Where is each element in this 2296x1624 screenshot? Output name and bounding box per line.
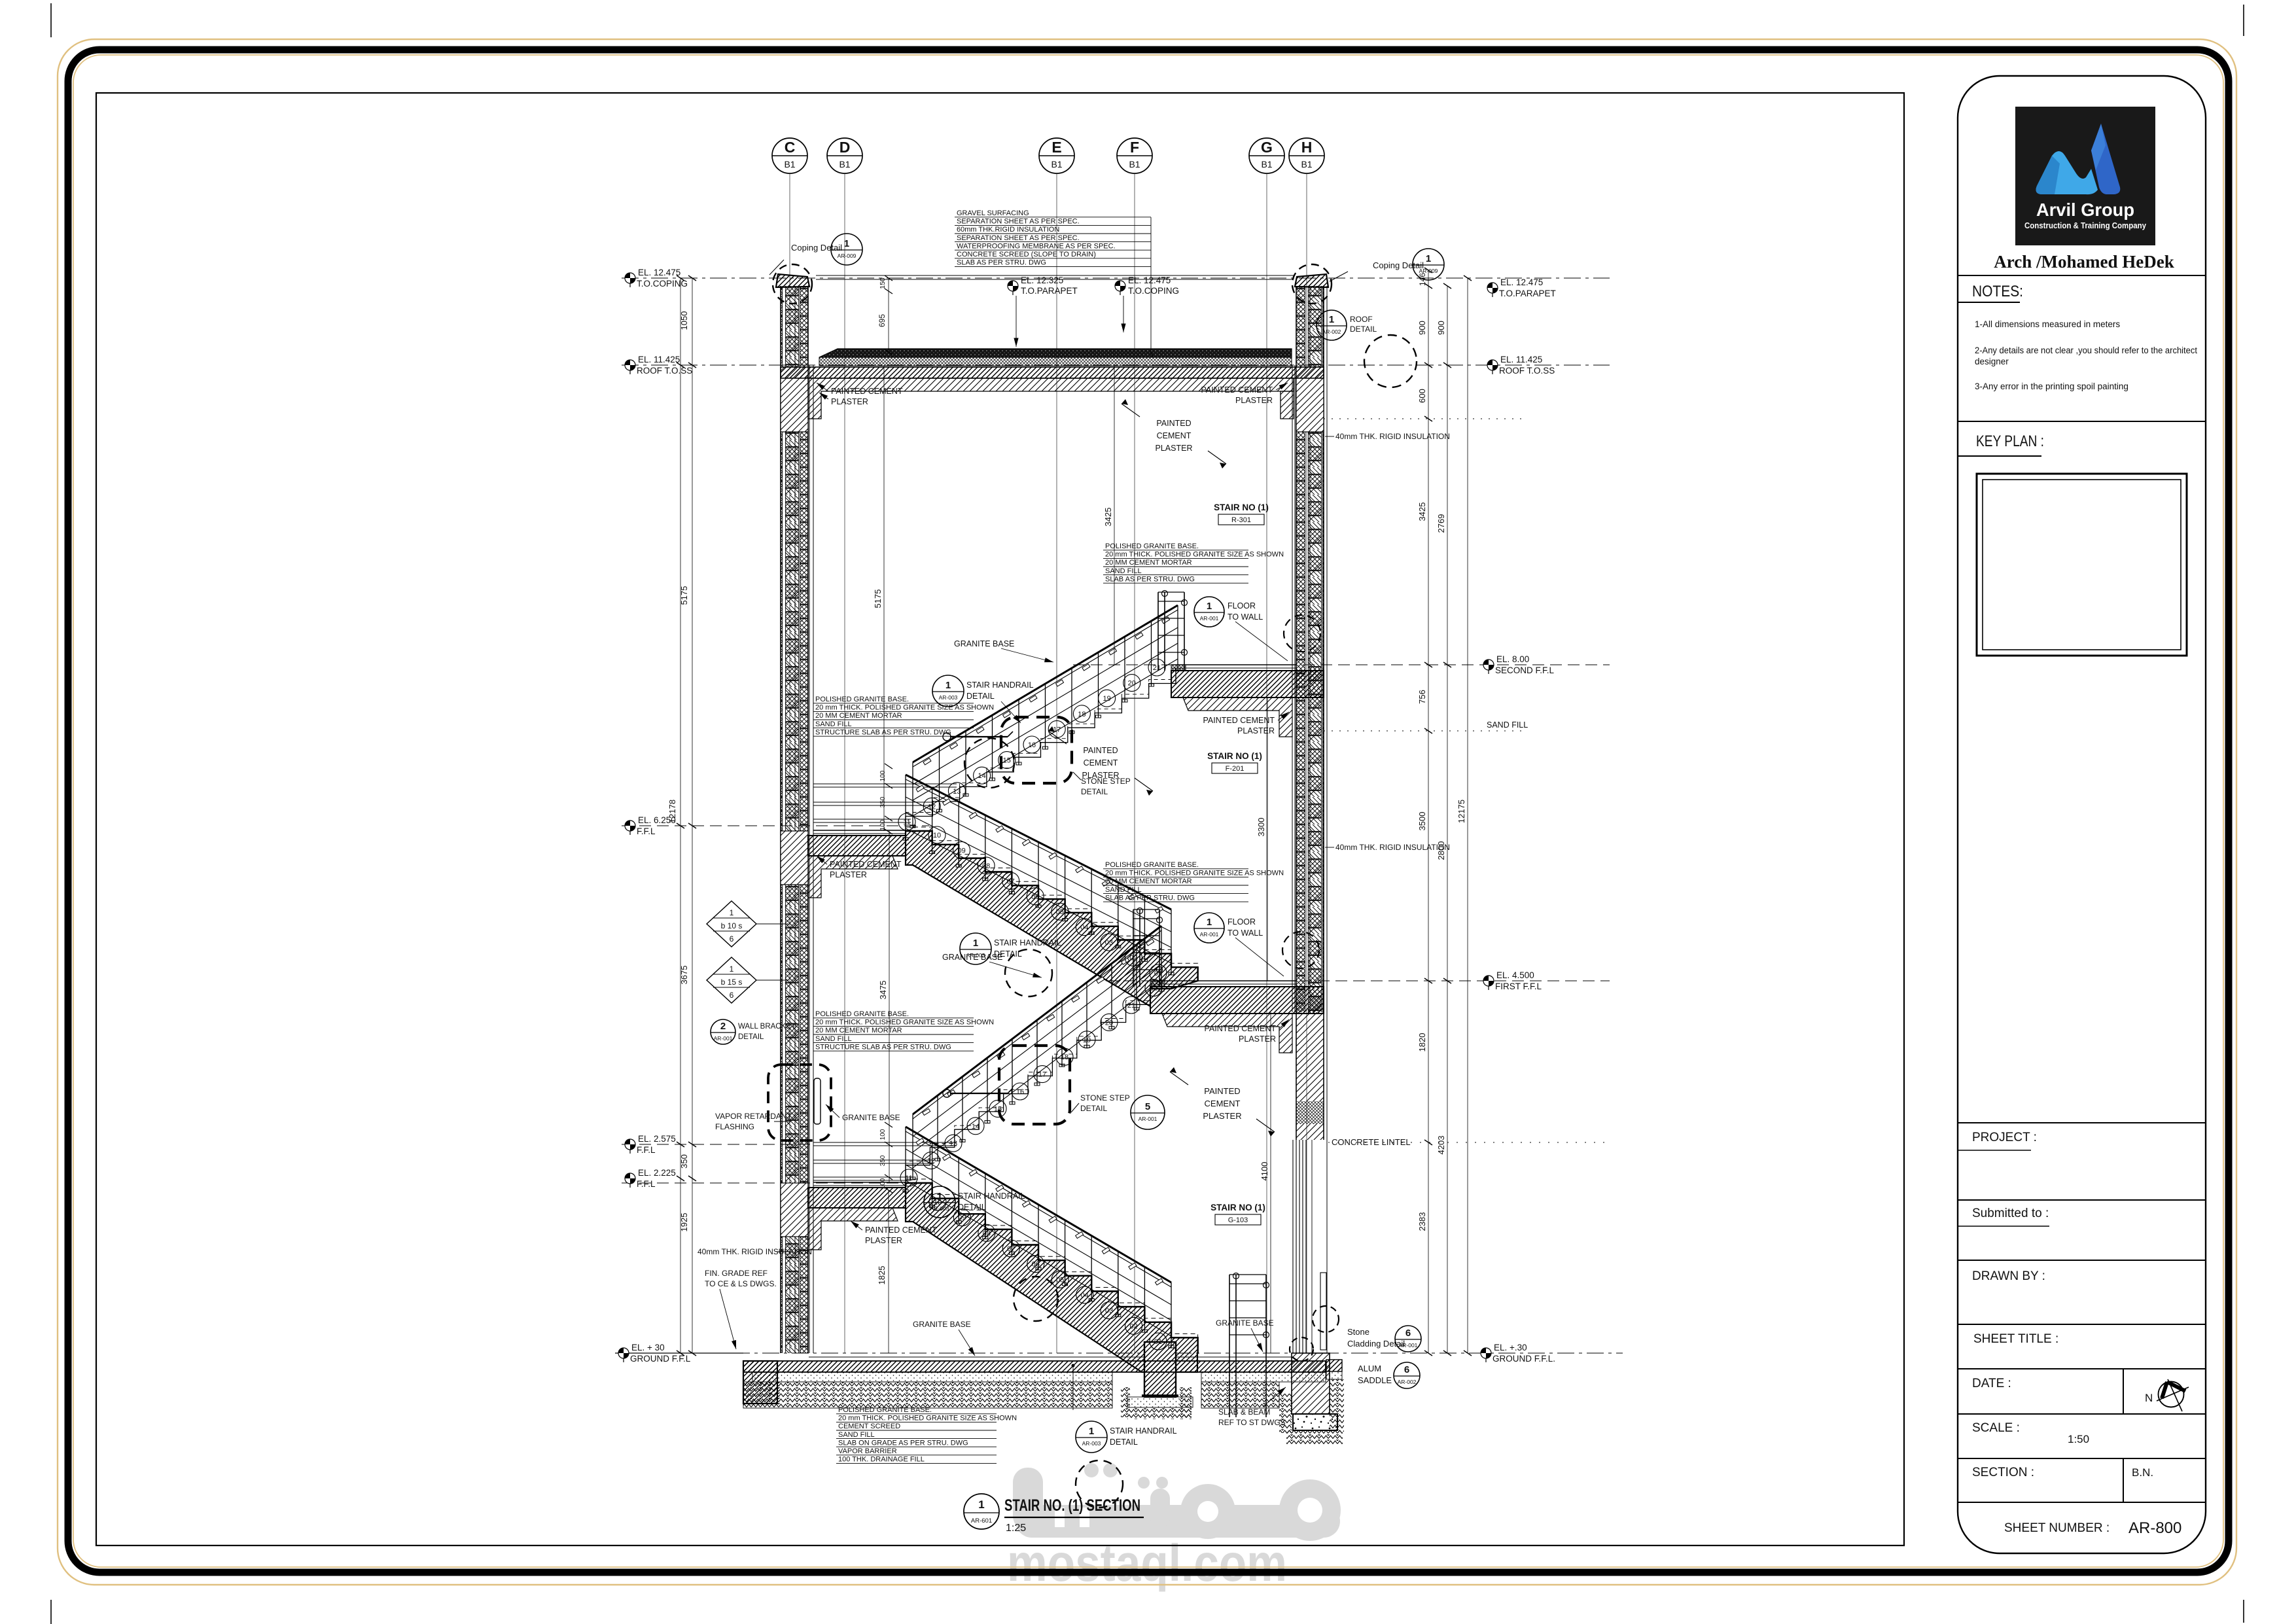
svg-text:FIN. GRADE REF: FIN. GRADE REF: [705, 1269, 768, 1278]
svg-text:EL. 8.00: EL. 8.00: [1496, 654, 1529, 664]
svg-text:1: 1: [973, 938, 978, 949]
svg-text:3-Any error in the printing sp: 3-Any error in the printing spoil painti…: [1975, 381, 2128, 391]
svg-text:2800: 2800: [1436, 841, 1446, 860]
svg-text:SLAB AS PER STRU. DWG: SLAB AS PER STRU. DWG: [957, 259, 1046, 267]
svg-text:DATE :: DATE :: [1972, 1377, 2011, 1390]
svg-text:17: 17: [1053, 726, 1061, 733]
svg-text:b 15 s: b 15 s: [721, 978, 743, 987]
svg-text:G-103: G-103: [1228, 1216, 1248, 1224]
svg-text:FLASHING: FLASHING: [715, 1122, 754, 1131]
svg-text:3300: 3300: [1256, 818, 1266, 837]
svg-text:DETAIL: DETAIL: [958, 1203, 986, 1212]
svg-text:AR-601: AR-601: [971, 1517, 992, 1525]
svg-text:SLAB AS PER STRU. DWG: SLAB AS PER STRU. DWG: [1105, 575, 1195, 583]
svg-text:EL. 12.325: EL. 12.325: [1021, 275, 1063, 285]
svg-text:Arvil Group: Arvil Group: [2036, 200, 2134, 220]
svg-text:1: 1: [1207, 917, 1212, 928]
svg-text:SAND FILL: SAND FILL: [838, 1431, 875, 1439]
svg-text:T.O.COPING: T.O.COPING: [1128, 286, 1179, 296]
svg-text:20 mm THICK. POLISHED GRANITE: 20 mm THICK. POLISHED GRANITE SIZE AS SH…: [838, 1415, 1017, 1422]
svg-text:B1: B1: [1261, 159, 1272, 169]
svg-text:WALL BRACKET: WALL BRACKET: [738, 1023, 796, 1031]
svg-text:SAND FILL: SAND FILL: [1487, 720, 1528, 730]
svg-text:EL. +.30: EL. +.30: [1494, 1343, 1527, 1352]
svg-text:F.F.L: F.F.L: [637, 826, 656, 836]
svg-text:11: 11: [905, 1174, 912, 1182]
svg-text:EL. 12.475: EL. 12.475: [638, 268, 680, 277]
svg-text:1:25: 1:25: [1006, 1523, 1026, 1534]
svg-text:TO WALL: TO WALL: [1227, 928, 1263, 938]
svg-text:SAND FILL: SAND FILL: [815, 720, 852, 728]
svg-text:6: 6: [1405, 1328, 1411, 1339]
svg-text:1: 1: [844, 238, 849, 249]
svg-text:GRANITE BASE: GRANITE BASE: [842, 1113, 900, 1122]
svg-text:DETAIL: DETAIL: [1081, 787, 1108, 796]
svg-text:02: 02: [1129, 955, 1137, 962]
svg-text:PLASTER: PLASTER: [865, 1236, 902, 1245]
svg-text:05: 05: [1056, 1276, 1064, 1284]
svg-text:SECOND F.F.L: SECOND F.F.L: [1495, 665, 1555, 675]
svg-text:1925: 1925: [679, 1213, 689, 1232]
svg-text:B1: B1: [1129, 159, 1140, 169]
svg-text:AR-003: AR-003: [966, 952, 985, 959]
svg-text:DETAIL: DETAIL: [738, 1033, 764, 1041]
svg-text:N: N: [2145, 1392, 2153, 1404]
svg-text:21: 21: [1127, 1002, 1135, 1010]
svg-text:ALUM: ALUM: [1358, 1364, 1381, 1373]
svg-text:G: G: [1261, 139, 1273, 156]
svg-text:CONCRETE SCREED (SLOPE TO DRAI: CONCRETE SCREED (SLOPE TO DRAIN): [957, 251, 1096, 258]
svg-text:11: 11: [903, 819, 910, 826]
svg-text:AR-003: AR-003: [939, 694, 958, 701]
svg-text:F.F.L: F.F.L: [637, 1179, 656, 1189]
svg-text:POLISHED GRANITE BASE.: POLISHED GRANITE BASE.: [1105, 542, 1199, 550]
svg-text:AR-001: AR-001: [1200, 931, 1219, 938]
svg-text:3425: 3425: [1103, 508, 1113, 527]
svg-text:SEPARATION SHEET AS PER SPEC.: SEPARATION SHEET AS PER SPEC.: [957, 234, 1080, 242]
svg-text:40mm THK. RIGID INSULATION: 40mm THK. RIGID INSULATION: [1335, 432, 1450, 441]
svg-text:20 mm THICK. POLISHED GRANITE: 20 mm THICK. POLISHED GRANITE SIZE AS SH…: [1105, 551, 1284, 559]
svg-text:T.O.PARAPET: T.O.PARAPET: [1499, 289, 1556, 298]
svg-text:350: 350: [879, 1155, 887, 1166]
svg-text:1:50: 1:50: [2068, 1433, 2089, 1445]
svg-text:STAIR NO (1): STAIR NO (1): [1210, 1203, 1265, 1212]
svg-text:2-Any details are not clear ,y: 2-Any details are not clear ,you should …: [1975, 345, 2197, 355]
svg-text:20: 20: [1105, 1019, 1113, 1027]
svg-text:07: 07: [1007, 1245, 1015, 1253]
svg-text:1-All dimensions measured in m: 1-All dimensions measured in meters: [1975, 319, 2120, 329]
svg-text:1: 1: [937, 1191, 942, 1202]
svg-text:4203: 4203: [1436, 1136, 1446, 1155]
svg-text:40mm THK. RIGID INSULATION: 40mm THK. RIGID INSULATION: [1335, 843, 1450, 852]
svg-text:DETAIL: DETAIL: [1350, 325, 1377, 334]
svg-text:SEPARATION SHEET AS PER SPEC.: SEPARATION SHEET AS PER SPEC.: [957, 218, 1080, 226]
svg-text:19: 19: [1083, 1036, 1091, 1044]
svg-text:60mm THK.RIGID INSULATION: 60mm THK.RIGID INSULATION: [957, 226, 1059, 234]
svg-text:VAPOR RETARDANT: VAPOR RETARDANT: [715, 1112, 792, 1121]
svg-text:B.N.: B.N.: [2132, 1466, 2153, 1479]
svg-text:GRANITE BASE: GRANITE BASE: [954, 639, 1014, 648]
svg-text:PAINTED CEMENT: PAINTED CEMENT: [1205, 1024, 1277, 1033]
svg-text:AR-003: AR-003: [930, 1205, 949, 1212]
svg-text:12178: 12178: [667, 800, 677, 823]
svg-text:PAINTED: PAINTED: [1204, 1086, 1240, 1096]
svg-text:PLASTER: PLASTER: [831, 397, 868, 406]
svg-text:EL. 11.425: EL. 11.425: [1500, 355, 1542, 364]
svg-text:4100: 4100: [1260, 1162, 1269, 1181]
svg-text:AR-002: AR-002: [1398, 1379, 1417, 1385]
svg-text:15: 15: [1003, 757, 1011, 765]
svg-text:AR-002: AR-002: [1322, 328, 1341, 335]
svg-text:AR-001: AR-001: [1139, 1116, 1157, 1122]
svg-text:150: 150: [879, 277, 887, 289]
svg-text:CEMENT: CEMENT: [1157, 431, 1192, 440]
svg-text:CEMENT: CEMENT: [1205, 1099, 1241, 1108]
svg-text:14: 14: [972, 1123, 980, 1131]
svg-text:01: 01: [1154, 1338, 1162, 1346]
svg-text:R-301: R-301: [1231, 516, 1251, 524]
svg-text:C: C: [785, 139, 796, 156]
svg-text:08: 08: [982, 862, 990, 870]
svg-text:PAINTED CEMENT: PAINTED CEMENT: [1201, 385, 1273, 395]
svg-text:Construction & Training Compan: Construction & Training Company: [2024, 221, 2146, 230]
svg-text:B1: B1: [1301, 159, 1312, 169]
svg-text:H: H: [1301, 139, 1313, 156]
svg-text:STAIR HANDRAIL: STAIR HANDRAIL: [994, 938, 1061, 947]
svg-text:5: 5: [1145, 1101, 1150, 1112]
svg-text:PAINTED CEMENT: PAINTED CEMENT: [1203, 716, 1275, 725]
svg-text:756: 756: [1417, 690, 1427, 704]
svg-text:KEY PLAN :: KEY PLAN :: [1976, 432, 2044, 450]
svg-text:20: 20: [1128, 680, 1136, 688]
svg-text:100 THK. DRAINAGE FILL: 100 THK. DRAINAGE FILL: [838, 1456, 925, 1464]
svg-text:SCALE :: SCALE :: [1972, 1421, 2020, 1435]
svg-text:ROOF T.O.SS: ROOF T.O.SS: [1499, 366, 1555, 376]
svg-text:6: 6: [730, 934, 734, 944]
svg-text:05: 05: [1056, 908, 1064, 916]
svg-text:EL. 2.225: EL. 2.225: [638, 1168, 676, 1178]
svg-text:1: 1: [1089, 1426, 1094, 1437]
svg-text:AR-001: AR-001: [1399, 1342, 1418, 1349]
svg-text:17: 17: [1038, 1071, 1046, 1079]
svg-text:PAINTED CEMENT: PAINTED CEMENT: [830, 860, 902, 869]
svg-text:06: 06: [1032, 1261, 1040, 1269]
svg-text:Stone: Stone: [1347, 1327, 1369, 1337]
svg-text:SLAB ON GRADE AS PER STRU. DWG: SLAB ON GRADE AS PER STRU. DWG: [838, 1439, 968, 1447]
svg-text:100: 100: [879, 1129, 887, 1140]
svg-text:04: 04: [1081, 1292, 1089, 1299]
svg-text:06: 06: [1031, 893, 1039, 901]
svg-text:STAIR NO (1): STAIR NO (1): [1207, 751, 1262, 761]
svg-text:10: 10: [933, 832, 941, 839]
svg-text:100: 100: [879, 770, 887, 781]
svg-text:SAND FILL: SAND FILL: [1105, 886, 1142, 894]
svg-text:900: 900: [1436, 321, 1446, 335]
svg-text:09: 09: [958, 1214, 966, 1222]
svg-text:STRUCTURE SLAB AS PER STRU. DW: STRUCTURE SLAB AS PER STRU. DWG: [815, 728, 951, 736]
svg-text:01: 01: [1154, 970, 1162, 978]
svg-text:SLAB & BEAM: SLAB & BEAM: [1218, 1407, 1270, 1417]
svg-text:3475: 3475: [878, 981, 888, 1000]
svg-text:PAINTED: PAINTED: [1083, 746, 1118, 755]
svg-text:FIRST F.F.L: FIRST F.F.L: [1495, 981, 1542, 991]
svg-text:08: 08: [983, 1229, 991, 1237]
svg-text:1: 1: [945, 680, 951, 691]
svg-text:PAINTED CEMENT: PAINTED CEMENT: [865, 1226, 937, 1235]
svg-text:SLAB AS PER STRU. DWG: SLAB AS PER STRU. DWG: [1105, 894, 1195, 902]
svg-text:22: 22: [1150, 985, 1157, 993]
svg-text:GRAVEL SURFACING: GRAVEL SURFACING: [957, 209, 1029, 217]
svg-text:2769: 2769: [1436, 514, 1446, 533]
svg-text:REF TO ST DWGS: REF TO ST DWGS: [1218, 1418, 1286, 1427]
svg-text:20 mm THICK. POLISHED GRANITE: 20 mm THICK. POLISHED GRANITE SIZE AS SH…: [1105, 870, 1284, 877]
svg-text:PLASTER: PLASTER: [1235, 396, 1273, 405]
svg-text:DETAIL: DETAIL: [966, 692, 995, 701]
svg-text:SAND FILL: SAND FILL: [1105, 567, 1142, 575]
svg-text:100: 100: [879, 1178, 887, 1189]
svg-text:GRANITE BASE: GRANITE BASE: [913, 1320, 971, 1329]
svg-text:E: E: [1051, 139, 1061, 156]
svg-text:GRANITE BASE: GRANITE BASE: [1216, 1318, 1274, 1328]
svg-text:EL. 11.425: EL. 11.425: [638, 355, 680, 364]
svg-text:13: 13: [953, 788, 961, 796]
svg-text:1825: 1825: [877, 1266, 887, 1285]
svg-text:AR-001: AR-001: [1200, 615, 1219, 622]
svg-text:DETAIL: DETAIL: [1080, 1104, 1107, 1113]
svg-text:16: 16: [1028, 741, 1036, 749]
svg-text:20 MM CEMENT MORTAR: 20 MM CEMENT MORTAR: [815, 712, 902, 720]
svg-text:FLOOR: FLOOR: [1227, 601, 1256, 610]
svg-text:03: 03: [1105, 1307, 1113, 1315]
svg-text:STAIR HANDRAIL: STAIR HANDRAIL: [958, 1192, 1025, 1201]
svg-text:CEMENT SCREED: CEMENT SCREED: [838, 1422, 900, 1430]
svg-text:40mm THK. RIGID INSULATION: 40mm THK. RIGID INSULATION: [698, 1247, 812, 1256]
svg-text:03: 03: [1105, 939, 1113, 947]
svg-text:SAND FILL: SAND FILL: [815, 1035, 852, 1043]
svg-text:DRAWN BY :: DRAWN BY :: [1972, 1269, 2045, 1283]
svg-text:SECTION :: SECTION :: [1972, 1466, 2034, 1479]
svg-text:SHEET TITLE :: SHEET TITLE :: [1973, 1332, 2058, 1346]
svg-text:SHEET NUMBER :: SHEET NUMBER :: [2004, 1521, 2110, 1535]
svg-text:100: 100: [879, 819, 887, 830]
svg-text:T.O.PARAPET: T.O.PARAPET: [1021, 286, 1078, 296]
svg-text:350: 350: [679, 1154, 689, 1169]
svg-text:POLISHED GRANITE BASE.: POLISHED GRANITE BASE.: [815, 696, 909, 703]
svg-text:695: 695: [877, 314, 887, 327]
svg-text:6: 6: [1404, 1364, 1409, 1375]
svg-text:12175: 12175: [1457, 800, 1466, 823]
svg-text:Arch /Mohamed HeDek: Arch /Mohamed HeDek: [1994, 252, 2174, 272]
svg-text:1: 1: [1207, 601, 1212, 612]
svg-text:5175: 5175: [679, 586, 689, 605]
svg-text:F.F.L: F.F.L: [637, 1145, 656, 1155]
svg-text:PLASTER: PLASTER: [1237, 726, 1275, 735]
svg-text:2383: 2383: [1417, 1212, 1427, 1231]
svg-text:18: 18: [1078, 711, 1086, 718]
svg-text:D: D: [839, 139, 851, 156]
svg-text:16: 16: [1016, 1088, 1024, 1096]
svg-text:STONE STEP: STONE STEP: [1081, 777, 1131, 786]
svg-text:19: 19: [1103, 695, 1110, 703]
svg-text:FLOOR: FLOOR: [1227, 917, 1256, 927]
svg-text:3675: 3675: [679, 966, 689, 985]
svg-text:146: 146: [1418, 273, 1427, 286]
svg-text:900: 900: [1417, 321, 1427, 335]
svg-text:1: 1: [1329, 314, 1334, 325]
svg-text:TO CE & LS DWGS.: TO CE & LS DWGS.: [705, 1279, 777, 1288]
svg-text:AR-003: AR-003: [1082, 1440, 1101, 1447]
svg-text:AR-001: AR-001: [714, 1035, 733, 1042]
svg-text:STAIR NO. (1) SECTION: STAIR NO. (1) SECTION: [1004, 1496, 1140, 1515]
svg-text:GROUND F.F.L: GROUND F.F.L: [630, 1354, 691, 1364]
svg-text:600: 600: [1417, 389, 1427, 403]
svg-text:12: 12: [927, 1157, 935, 1165]
svg-text:02: 02: [1129, 1322, 1137, 1330]
svg-text:13: 13: [949, 1140, 957, 1148]
svg-text:EL. 4.500: EL. 4.500: [1496, 970, 1534, 980]
svg-text:20 MM CEMENT MORTAR: 20 MM CEMENT MORTAR: [1105, 559, 1192, 567]
svg-text:EL. + 30: EL. + 30: [631, 1343, 665, 1352]
svg-text:3500: 3500: [1417, 812, 1427, 831]
svg-text:DETAIL: DETAIL: [994, 949, 1022, 959]
svg-text:1050: 1050: [679, 311, 689, 330]
svg-text:20 MM CEMENT MORTAR: 20 MM CEMENT MORTAR: [1105, 877, 1192, 885]
svg-text:AR-009: AR-009: [838, 253, 857, 259]
svg-text:DETAIL: DETAIL: [1110, 1438, 1138, 1447]
svg-text:STRUCTURE SLAB AS PER STRU. DW: STRUCTURE SLAB AS PER STRU. DWG: [815, 1043, 951, 1051]
svg-text:PLASTER: PLASTER: [830, 870, 867, 879]
svg-text:1820: 1820: [1417, 1033, 1427, 1052]
svg-text:Submitted to :: Submitted to :: [1972, 1207, 2049, 1220]
svg-text:21: 21: [1153, 664, 1161, 672]
svg-text:Coping Detail: Coping Detail: [791, 243, 842, 253]
svg-text:STAIR HANDRAIL: STAIR HANDRAIL: [966, 680, 1034, 690]
svg-text:PLASTER: PLASTER: [1203, 1111, 1241, 1121]
svg-text:PAINTED: PAINTED: [1156, 419, 1191, 428]
svg-text:VAPOR BARRIER: VAPOR BARRIER: [838, 1447, 897, 1455]
svg-text:CEMENT: CEMENT: [1084, 758, 1118, 768]
svg-text:EL. 2.575: EL. 2.575: [638, 1134, 676, 1144]
svg-text:09: 09: [957, 847, 965, 855]
svg-text:1: 1: [1426, 253, 1431, 264]
svg-text:PROJECT :: PROJECT :: [1972, 1131, 2037, 1144]
svg-text:1: 1: [978, 1498, 984, 1511]
svg-text:EL. 12.475: EL. 12.475: [1128, 275, 1171, 285]
svg-text:14: 14: [978, 772, 985, 780]
svg-text:07: 07: [1007, 877, 1015, 885]
svg-text:PLASTER: PLASTER: [1239, 1034, 1276, 1044]
svg-text:F-201: F-201: [1226, 765, 1245, 773]
svg-text:350: 350: [879, 796, 887, 807]
svg-text:NOTES:: NOTES:: [1972, 283, 2023, 300]
svg-text:1: 1: [730, 964, 734, 974]
svg-text:STAIR HANDRAIL: STAIR HANDRAIL: [1110, 1426, 1177, 1436]
svg-text:3425: 3425: [1417, 503, 1427, 521]
svg-text:2: 2: [720, 1021, 726, 1032]
svg-text:B1: B1: [1051, 159, 1062, 169]
svg-text:mostaql.com: mostaql.com: [1007, 1534, 1287, 1592]
svg-text:T.O.COPING: T.O.COPING: [637, 279, 688, 289]
svg-text:6: 6: [730, 991, 734, 1000]
svg-text:POLISHED GRANITE BASE.: POLISHED GRANITE BASE.: [1105, 861, 1199, 869]
svg-text:1: 1: [730, 908, 734, 917]
svg-text:POLISHED GRANITE BASE.: POLISHED GRANITE BASE.: [838, 1406, 932, 1414]
svg-text:AR-800: AR-800: [2128, 1519, 2181, 1537]
svg-text:SADDLE: SADDLE: [1358, 1375, 1392, 1385]
svg-text:20 mm THICK. POLISHED GRANITE: 20 mm THICK. POLISHED GRANITE SIZE AS SH…: [815, 1019, 994, 1027]
svg-text:b 10 s: b 10 s: [721, 921, 743, 930]
svg-text:B1: B1: [784, 159, 795, 169]
svg-text:B1: B1: [839, 159, 850, 169]
svg-text:STAIR NO (1): STAIR NO (1): [1214, 503, 1269, 512]
svg-text:WATERPROOFING MEMBRANE AS PER: WATERPROOFING MEMBRANE AS PER SPEC.: [957, 242, 1116, 250]
svg-text:STONE STEP: STONE STEP: [1080, 1093, 1130, 1103]
svg-text:04: 04: [1080, 924, 1088, 932]
svg-text:5175: 5175: [873, 590, 883, 609]
svg-text:designer: designer: [1975, 357, 2009, 366]
svg-text:20 mm THICK. POLISHED GRANITE: 20 mm THICK. POLISHED GRANITE SIZE AS SH…: [815, 704, 994, 712]
svg-text:12: 12: [928, 803, 936, 811]
svg-text:18: 18: [1061, 1053, 1069, 1061]
svg-text:EL. 12.475: EL. 12.475: [1500, 277, 1543, 287]
svg-text:CONCRETE LINTEL: CONCRETE LINTEL: [1332, 1137, 1411, 1147]
svg-text:TO WALL: TO WALL: [1227, 612, 1263, 622]
svg-text:GROUND F.F.L.: GROUND F.F.L.: [1492, 1354, 1555, 1364]
svg-text:PLASTER: PLASTER: [1156, 444, 1193, 453]
svg-text:PAINTED CEMENT: PAINTED CEMENT: [831, 387, 903, 396]
svg-text:POLISHED GRANITE BASE.: POLISHED GRANITE BASE.: [815, 1010, 909, 1018]
svg-text:ROOF: ROOF: [1350, 315, 1373, 324]
svg-text:F: F: [1130, 139, 1139, 156]
